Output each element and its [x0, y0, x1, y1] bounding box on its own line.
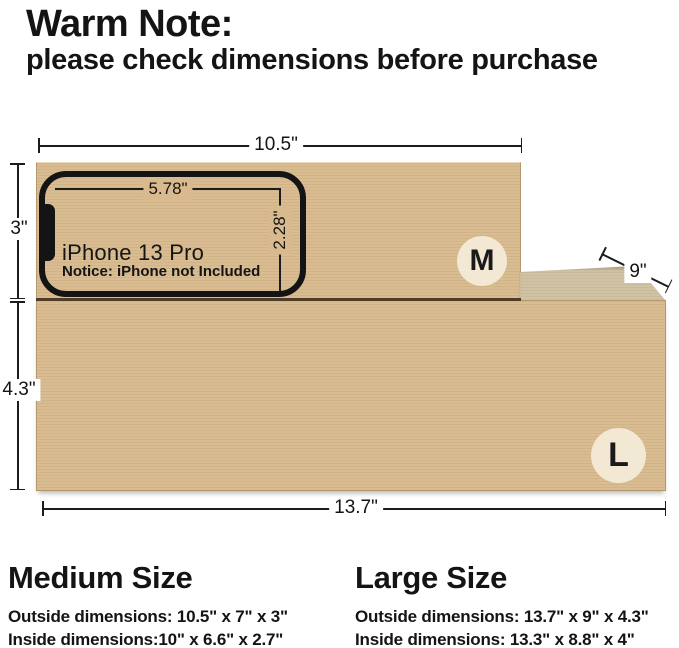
warm-note-diagram: Warm Note: please check dimensions befor… [0, 0, 679, 648]
medium-width-dim-tick-right [521, 138, 523, 153]
box-seam-line [36, 298, 521, 301]
medium-width-dim-tick-left [38, 138, 40, 153]
large-box-front-face [36, 300, 666, 491]
phone-height-dim-label: 2.28" [269, 205, 291, 254]
medium-size-heading: Medium Size [8, 560, 288, 596]
phone-width-dim-label: 5.78" [143, 178, 192, 200]
large-inside-dimensions: Inside dimensions: 13.3" x 8.8" x 4" [355, 629, 649, 648]
large-width-dim-label: 13.7" [329, 497, 383, 519]
medium-outside-dimensions: Outside dimensions: 10.5" x 7" x 3" [8, 606, 288, 629]
large-width-dim-tick-right [665, 501, 667, 516]
iphone-notch [45, 204, 55, 261]
medium-inside-dimensions: Inside dimensions:10" x 6.6" x 2.7" [8, 629, 288, 648]
large-depth-dim-label: 9" [624, 261, 651, 283]
large-height-dim-tick-top [10, 301, 25, 303]
large-size-heading: Large Size [355, 560, 649, 596]
medium-height-dim-tick-top [10, 163, 25, 165]
large-width-dim-tick-left [42, 501, 44, 516]
page-subtitle: please check dimensions before purchase [26, 42, 598, 78]
medium-height-dim-tick-bottom [10, 298, 25, 300]
page-title: Warm Note: [26, 2, 233, 46]
large-height-dim-label: 4.3" [0, 379, 41, 401]
iphone-notice-label: Notice: iPhone not Included [62, 263, 260, 280]
medium-size-badge: M [457, 236, 507, 286]
medium-size-details: Medium Size Outside dimensions: 10.5" x … [8, 560, 288, 648]
medium-height-dim-label: 3" [5, 218, 32, 240]
large-outside-dimensions: Outside dimensions: 13.7" x 9" x 4.3" [355, 606, 649, 629]
medium-width-dim-label: 10.5" [249, 134, 303, 156]
large-size-details: Large Size Outside dimensions: 13.7" x 9… [355, 560, 649, 648]
large-height-dim-tick-bottom [10, 489, 25, 491]
large-size-badge: L [591, 428, 646, 483]
